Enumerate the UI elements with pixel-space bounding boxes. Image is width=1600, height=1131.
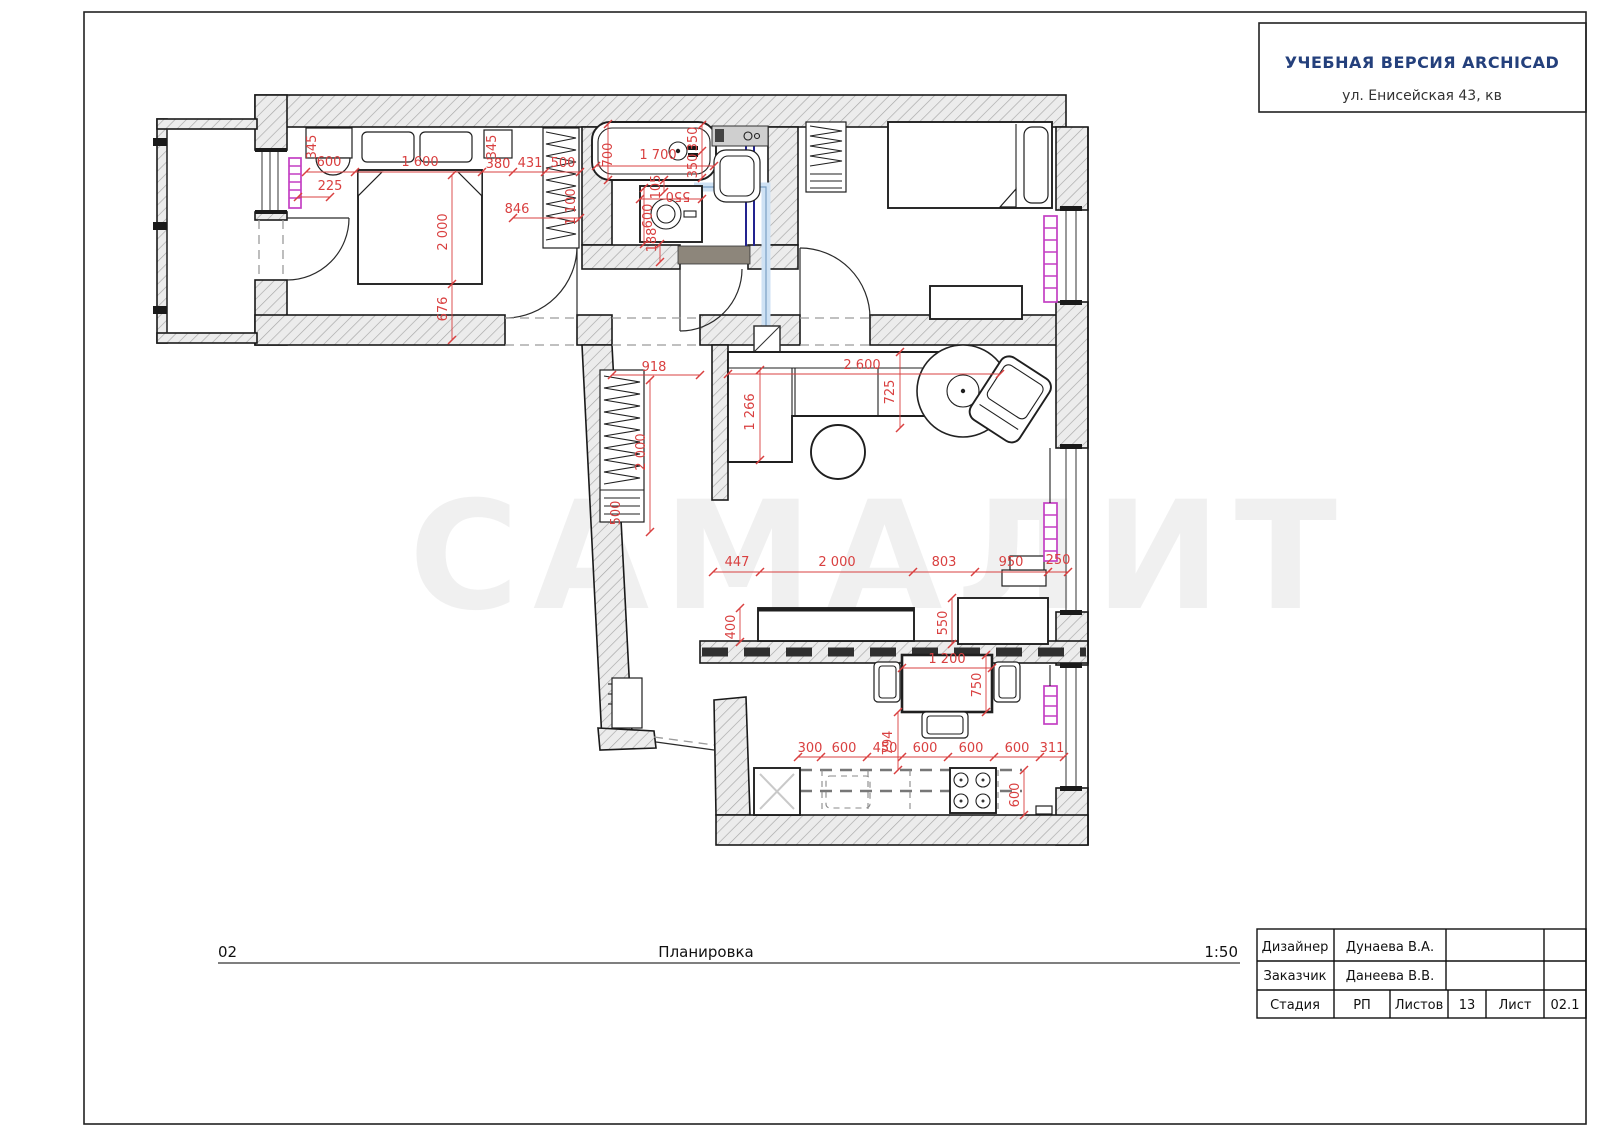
furniture <box>306 122 1055 815</box>
dimension-label: 105 <box>649 175 664 200</box>
dimension-label: 600 <box>641 204 656 229</box>
dimension-label: 2 000 <box>818 555 855 570</box>
dimension-label: 311 <box>1040 741 1065 756</box>
living-room <box>728 345 1055 479</box>
dimension-label: 725 <box>883 380 898 405</box>
archicad-version-label: УЧЕБНАЯ ВЕРСИЯ ARCHICAD <box>1285 53 1560 72</box>
bathroom <box>592 122 768 242</box>
dimension-label: 918 <box>642 360 667 375</box>
sheets-count: 13 <box>1459 998 1476 1013</box>
drawing-title: Планировка <box>658 943 753 961</box>
project-address: ул. Енисейская 43, кв <box>1342 88 1502 104</box>
dimension-label: 400 <box>724 615 739 640</box>
stove <box>950 768 996 813</box>
toilet-shaft <box>712 126 768 202</box>
stage-label: Стадия <box>1270 998 1320 1013</box>
floor-plan-sheet: САМАЛИТ <box>0 0 1600 1131</box>
balcony-door <box>259 218 349 280</box>
fridge <box>754 768 800 815</box>
water-heater <box>714 150 760 202</box>
dimension-label: 350 <box>686 127 701 152</box>
dimension-label: 1 266 <box>743 393 758 430</box>
dining-chair <box>994 662 1020 702</box>
dining-chair <box>922 712 968 738</box>
double-bed <box>358 170 482 284</box>
dimension-label: 600 <box>1008 783 1023 808</box>
dimension-label: 803 <box>932 555 957 570</box>
dimension-label: 1 200 <box>928 652 965 667</box>
wardrobe <box>806 122 846 192</box>
stage-value: РП <box>1353 998 1371 1013</box>
dimension-label: 450 <box>873 741 898 756</box>
dimension-label: 550 <box>936 611 951 636</box>
dimension-label: 2 600 <box>843 358 880 373</box>
client-name: Данеева В.В. <box>1346 969 1434 984</box>
bedroom1 <box>306 128 579 284</box>
dimension-label: 846 <box>505 202 530 217</box>
sheet-label: Лист <box>1499 998 1532 1013</box>
dimension-label: 345 <box>485 135 500 160</box>
pillow <box>1024 127 1048 203</box>
dimension-label: 1 100 <box>564 188 579 225</box>
dimension-label: 600 <box>959 741 984 756</box>
radiator <box>1044 448 1057 561</box>
entry-door <box>654 737 714 750</box>
hall-cabinet <box>612 678 642 728</box>
dresser <box>930 286 1022 319</box>
sheets-label: Листов <box>1395 998 1444 1013</box>
dimension-label: 300 <box>798 741 823 756</box>
footer: 02 Планировка 1:50 <box>218 943 1240 963</box>
dimension-label: 1 600 <box>401 155 438 170</box>
bedroom1-balcony-window <box>255 148 287 214</box>
client-label: Заказчик <box>1263 969 1326 984</box>
dimension-label: 2 000 <box>634 433 649 470</box>
dimension-label: 700 <box>601 143 616 168</box>
dimension-label: 431 <box>518 156 543 171</box>
dimension-label: 380 <box>486 157 511 172</box>
kitchen-window <box>1060 663 1082 791</box>
drawing-number: 02 <box>218 943 237 961</box>
dimension-label: 350 <box>686 154 701 179</box>
bedroom1-door <box>505 246 577 345</box>
radiator <box>1044 216 1057 302</box>
dimension-label: 600 <box>1005 741 1030 756</box>
dimension-label: 2 000 <box>436 213 451 250</box>
designer-label: Дизайнер <box>1262 940 1329 955</box>
plumbing-riser-box <box>754 326 780 352</box>
dimension-label: 1 700 <box>639 148 676 163</box>
dimension-label: 447 <box>725 555 750 570</box>
bedroom2 <box>806 122 1052 319</box>
header-box: УЧЕБНАЯ ВЕРСИЯ ARCHICAD ул. Енисейская 4… <box>1259 23 1586 112</box>
title-block-table: Дизайнер Дунаева В.А. Заказчик Данеева В… <box>1257 929 1586 1018</box>
sheet-number: 02.1 <box>1551 998 1580 1013</box>
radiator <box>1044 665 1057 724</box>
wardrobe <box>543 128 579 248</box>
dimension-label: 600 <box>832 741 857 756</box>
dimension-label: 250 <box>1046 553 1071 568</box>
dimension-label: 500 <box>551 156 576 171</box>
dimension-label: 600 <box>317 155 342 170</box>
dining-chair <box>874 662 900 702</box>
dimension-label: 600 <box>913 741 938 756</box>
bedroom2-door <box>800 248 870 345</box>
bedroom2-window <box>1060 206 1082 305</box>
dimension-label: 225 <box>318 179 343 194</box>
counter-item <box>1036 806 1052 814</box>
dimension-label: 950 <box>999 555 1024 570</box>
dimension-label: 676 <box>436 297 451 322</box>
dimension-label: 500 <box>609 501 624 526</box>
designer-name: Дунаева В.А. <box>1346 940 1434 955</box>
coffee-table <box>811 425 865 479</box>
dimension-label: 188 <box>645 228 660 253</box>
tv-bench <box>758 608 914 641</box>
dimension-label: 750 <box>970 673 985 698</box>
drawing-sheet: САМАЛИТ <box>0 0 1600 1131</box>
drawing-scale: 1:50 <box>1204 943 1238 961</box>
dimension-label: 550 <box>666 188 691 203</box>
